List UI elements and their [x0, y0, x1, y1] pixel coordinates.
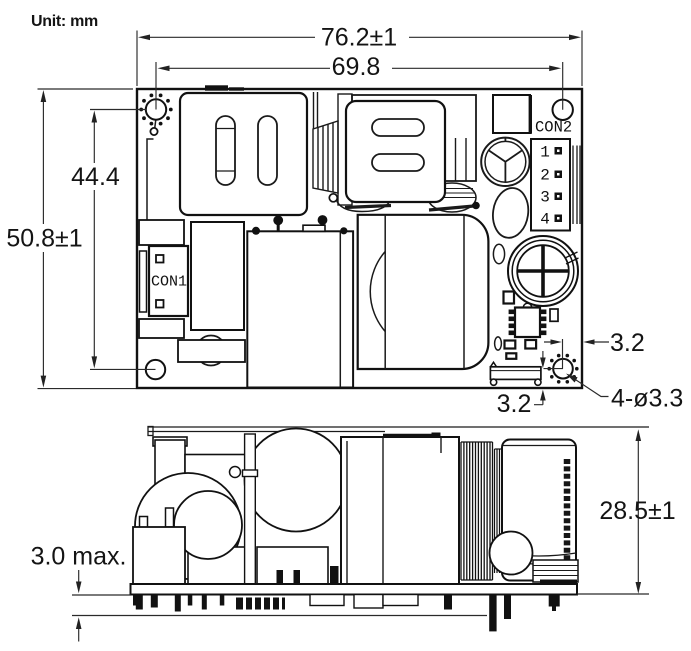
svg-text:1: 1: [540, 144, 550, 162]
svg-text:69.8: 69.8: [332, 53, 381, 81]
svg-text:50.8±1: 50.8±1: [6, 225, 82, 253]
svg-text:4-ø3.3: 4-ø3.3: [611, 385, 683, 413]
svg-text:2: 2: [540, 167, 550, 185]
svg-text:28.5±1: 28.5±1: [599, 497, 675, 525]
svg-text:Unit: mm: Unit: mm: [31, 13, 98, 30]
svg-text:CON2: CON2: [535, 119, 572, 137]
svg-text:CON1: CON1: [151, 274, 187, 291]
svg-text:76.2±1: 76.2±1: [321, 23, 397, 51]
svg-text:3: 3: [540, 189, 550, 207]
svg-text:3.2: 3.2: [497, 390, 532, 418]
svg-text:4: 4: [540, 211, 550, 229]
svg-text:3.0 max.: 3.0 max.: [31, 543, 127, 571]
svg-text:3.2: 3.2: [610, 329, 645, 357]
svg-text:44.4: 44.4: [71, 163, 120, 191]
